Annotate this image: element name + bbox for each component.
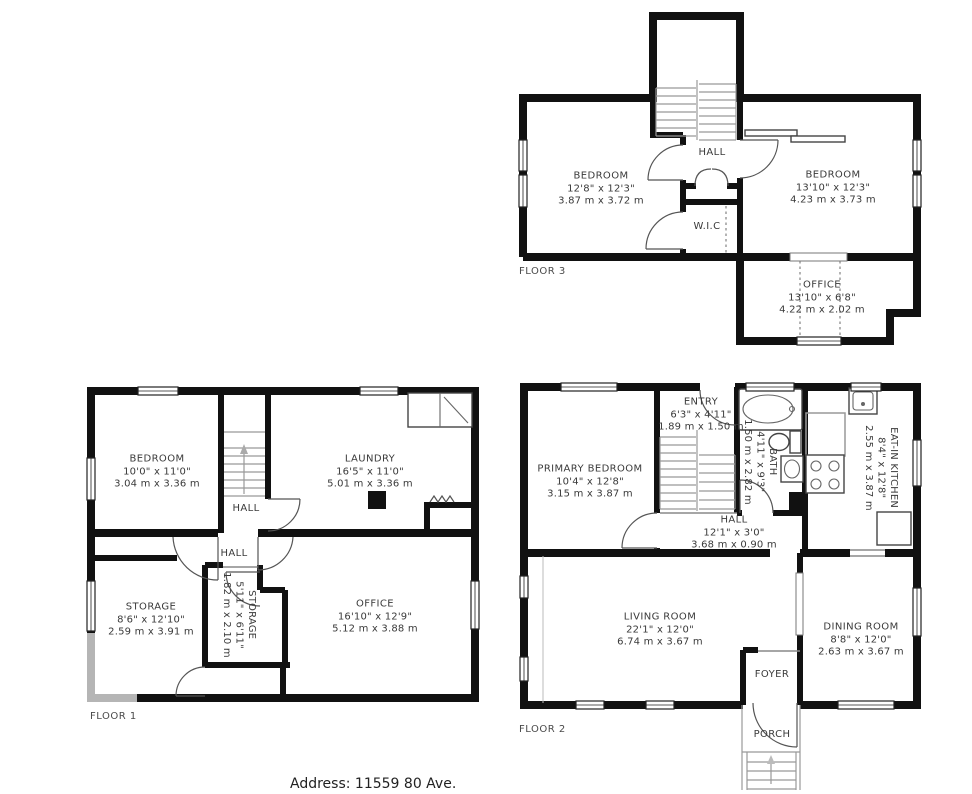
room-dim-imperial: 22'1" x 12'0" bbox=[617, 624, 703, 637]
room-dim-imperial: 8'8" x 12'0" bbox=[818, 634, 904, 647]
labels-layer: BEDROOM 12'8" x 12'3" 3.87 m x 3.72 m HA… bbox=[0, 0, 972, 794]
room-label-hall-f3: HALL bbox=[698, 147, 725, 160]
room-label-porch-f2: PORCH bbox=[754, 729, 791, 742]
room-label-hall-lower-f1: HALL bbox=[220, 548, 247, 561]
room-dim-imperial: 13'10" x 6'8" bbox=[779, 292, 865, 305]
room-name: EAT-IN KITCHEN bbox=[886, 425, 899, 511]
room-dim-metric: 6.74 m x 3.67 m bbox=[617, 636, 703, 649]
room-dim-imperial: 6'3" x 4'11" bbox=[658, 409, 744, 422]
room-dim-imperial: 5'11" x 6'11" bbox=[232, 572, 245, 658]
room-name: ENTRY bbox=[658, 396, 744, 409]
address-line: Address: 11559 80 Ave. bbox=[290, 776, 456, 792]
room-label-hall-upper-f1: HALL bbox=[232, 503, 259, 516]
floor3-tag: FLOOR 3 bbox=[519, 266, 566, 277]
room-name: HALL bbox=[698, 147, 725, 160]
room-dim-metric: 2.59 m x 3.91 m bbox=[108, 626, 194, 639]
room-dim-metric: 4.23 m x 3.73 m bbox=[790, 194, 876, 207]
room-name: OFFICE bbox=[779, 279, 865, 292]
room-name: PORCH bbox=[754, 729, 791, 742]
room-name: LIVING ROOM bbox=[617, 611, 703, 624]
room-name: BEDROOM bbox=[114, 453, 200, 466]
room-name: HALL bbox=[232, 503, 259, 516]
room-name: HALL bbox=[691, 514, 777, 527]
room-dim-metric: 4.22 m x 2.02 m bbox=[779, 304, 865, 317]
room-label-foyer-f2: FOYER bbox=[755, 669, 789, 682]
room-dim-metric: 3.68 m x 0.90 m bbox=[691, 539, 777, 552]
room-dim-metric: 2.63 m x 3.67 m bbox=[818, 646, 904, 659]
floor2-tag: FLOOR 2 bbox=[519, 724, 566, 735]
room-dim-metric: 1.89 m x 1.50 m bbox=[658, 421, 744, 434]
room-name: BATH bbox=[765, 419, 778, 505]
room-dim-imperial: 10'4" x 12'8" bbox=[537, 476, 642, 489]
room-dim-imperial: 12'1" x 3'0" bbox=[691, 527, 777, 540]
room-name: W.I.C bbox=[693, 221, 720, 234]
room-label-kitchen-f2: EAT-IN KITCHEN 8'4" x 12'8" 2.55 m x 3.8… bbox=[861, 425, 899, 511]
room-label-hall-f2: HALL 12'1" x 3'0" 3.68 m x 0.90 m bbox=[691, 514, 777, 552]
room-name: DINING ROOM bbox=[818, 621, 904, 634]
room-name: HALL bbox=[220, 548, 247, 561]
room-name: LAUNDRY bbox=[327, 453, 413, 466]
room-dim-imperial: 13'10" x 12'3" bbox=[790, 182, 876, 195]
floor1-tag: FLOOR 1 bbox=[90, 711, 137, 722]
room-name: STORAGE bbox=[244, 572, 257, 658]
floorplan-page: BEDROOM 12'8" x 12'3" 3.87 m x 3.72 m HA… bbox=[0, 0, 972, 794]
room-label-bedroom-right-f3: BEDROOM 13'10" x 12'3" 4.23 m x 3.73 m bbox=[790, 169, 876, 207]
room-label-laundry-f1: LAUNDRY 16'5" x 11'0" 5.01 m x 3.36 m bbox=[327, 453, 413, 491]
room-name: BEDROOM bbox=[790, 169, 876, 182]
room-dim-metric: 2.55 m x 3.87 m bbox=[861, 425, 874, 511]
room-label-primary-bedroom-f2: PRIMARY BEDROOM 10'4" x 12'8" 3.15 m x 3… bbox=[537, 463, 642, 501]
room-dim-imperial: 16'10" x 12'9" bbox=[332, 611, 418, 624]
room-dim-imperial: 8'6" x 12'10" bbox=[108, 614, 194, 627]
room-label-office-f1: OFFICE 16'10" x 12'9" 5.12 m x 3.88 m bbox=[332, 598, 418, 636]
room-label-entry-f2: ENTRY 6'3" x 4'11" 1.89 m x 1.50 m bbox=[658, 396, 744, 434]
room-dim-metric: 1.50 m x 2.82 m bbox=[740, 419, 753, 505]
room-label-storage-large-f1: STORAGE 8'6" x 12'10" 2.59 m x 3.91 m bbox=[108, 601, 194, 639]
room-label-storage-small-f1: STORAGE 5'11" x 6'11" 1.82 m x 2.10 m bbox=[219, 572, 257, 658]
room-dim-imperial: 10'0" x 11'0" bbox=[114, 466, 200, 479]
room-label-wic-f3: W.I.C bbox=[693, 221, 720, 234]
room-dim-metric: 3.04 m x 3.36 m bbox=[114, 478, 200, 491]
room-dim-metric: 5.01 m x 3.36 m bbox=[327, 478, 413, 491]
room-dim-imperial: 4'11" x 9'3" bbox=[753, 419, 766, 505]
room-dim-imperial: 16'5" x 11'0" bbox=[327, 466, 413, 479]
room-label-office-f3: OFFICE 13'10" x 6'8" 4.22 m x 2.02 m bbox=[779, 279, 865, 317]
room-dim-metric: 3.15 m x 3.87 m bbox=[537, 488, 642, 501]
room-label-bath-f2: BATH 4'11" x 9'3" 1.50 m x 2.82 m bbox=[740, 419, 778, 505]
room-dim-metric: 1.82 m x 2.10 m bbox=[219, 572, 232, 658]
room-label-bedroom-f1: BEDROOM 10'0" x 11'0" 3.04 m x 3.36 m bbox=[114, 453, 200, 491]
room-label-dining-f2: DINING ROOM 8'8" x 12'0" 2.63 m x 3.67 m bbox=[818, 621, 904, 659]
room-label-living-f2: LIVING ROOM 22'1" x 12'0" 6.74 m x 3.67 … bbox=[617, 611, 703, 649]
room-dim-imperial: 8'4" x 12'8" bbox=[874, 425, 887, 511]
room-dim-metric: 3.87 m x 3.72 m bbox=[558, 195, 644, 208]
room-name: OFFICE bbox=[332, 598, 418, 611]
room-name: FOYER bbox=[755, 669, 789, 682]
room-label-bedroom-left-f3: BEDROOM 12'8" x 12'3" 3.87 m x 3.72 m bbox=[558, 170, 644, 208]
room-dim-imperial: 12'8" x 12'3" bbox=[558, 183, 644, 196]
room-name: BEDROOM bbox=[558, 170, 644, 183]
room-dim-metric: 5.12 m x 3.88 m bbox=[332, 623, 418, 636]
room-name: PRIMARY BEDROOM bbox=[537, 463, 642, 476]
room-name: STORAGE bbox=[108, 601, 194, 614]
